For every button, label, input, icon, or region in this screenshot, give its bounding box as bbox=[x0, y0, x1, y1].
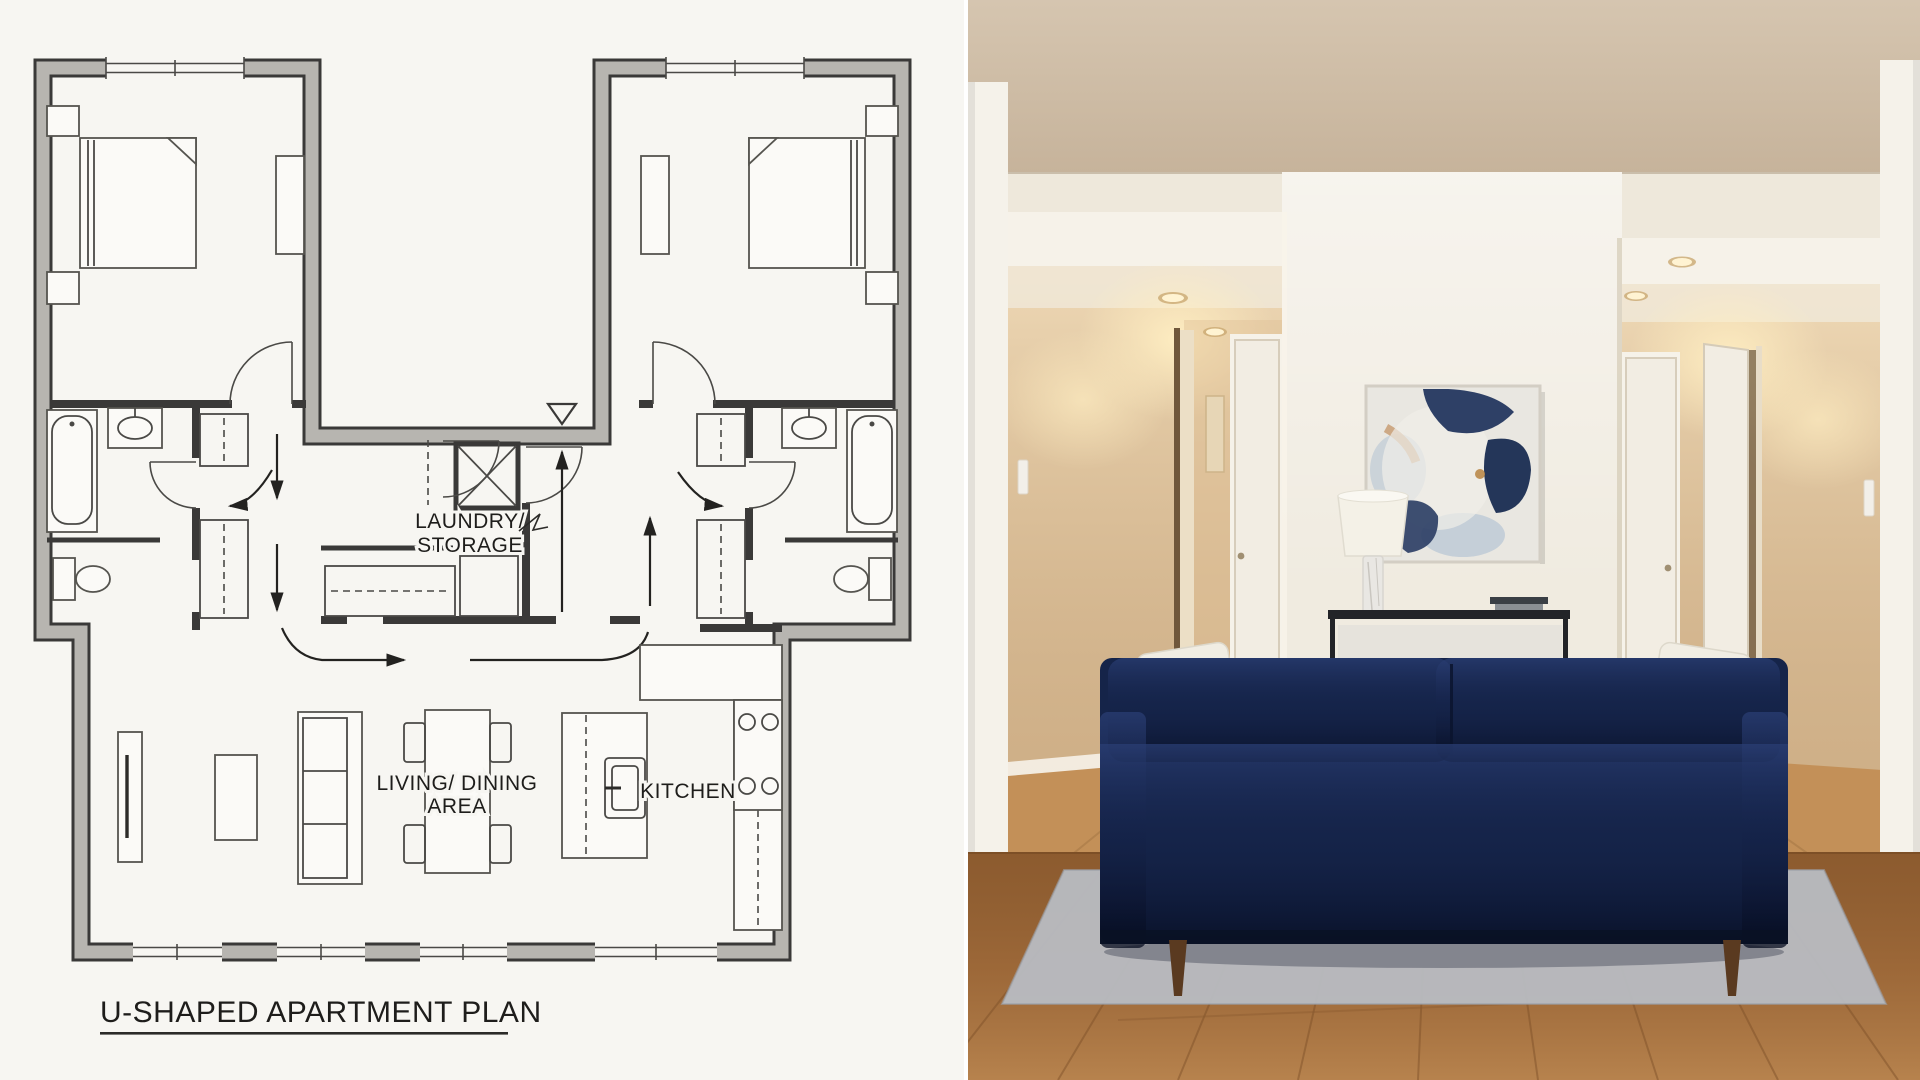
door-knob bbox=[1238, 553, 1245, 560]
lamp-shade bbox=[1338, 496, 1408, 556]
bed-left bbox=[80, 138, 196, 268]
windows-living-room bbox=[133, 941, 717, 963]
title-underline bbox=[100, 1032, 508, 1035]
laundry-storage-label: STORAGE bbox=[417, 534, 523, 557]
nightstand bbox=[866, 106, 898, 136]
living-dining-label: LIVING/ DINING bbox=[376, 772, 537, 795]
apartment-photo-panel bbox=[968, 0, 1920, 1080]
kitchen-island bbox=[562, 713, 647, 858]
bathtub-right bbox=[847, 410, 897, 532]
coffee-table bbox=[215, 755, 257, 840]
light-switch bbox=[1864, 480, 1874, 516]
navy-sofa bbox=[1100, 641, 1788, 996]
hallway-soffit bbox=[1620, 238, 1882, 284]
dresser-left bbox=[276, 156, 304, 254]
door-knob bbox=[1665, 565, 1672, 572]
sofa-plan bbox=[298, 712, 362, 884]
nightstand bbox=[866, 272, 898, 304]
window-bedroom-right bbox=[666, 57, 804, 79]
bathtub-left bbox=[47, 410, 97, 532]
tv-console bbox=[118, 732, 142, 862]
dresser-right bbox=[641, 156, 669, 254]
left-pillar bbox=[968, 82, 1008, 872]
plan-title: U-SHAPED APARTMENT PLAN bbox=[100, 996, 542, 1029]
hallway-soffit bbox=[1008, 212, 1282, 266]
kitchen-label: KITCHEN bbox=[640, 780, 736, 803]
stove bbox=[734, 700, 782, 810]
right-pillar bbox=[1880, 60, 1920, 872]
light-switch bbox=[1018, 460, 1028, 494]
apartment-photo bbox=[968, 0, 1920, 1080]
electrical-panel bbox=[1206, 396, 1224, 472]
floor-plan-drawing: LAUNDRY/ STORAGE bbox=[0, 0, 964, 1080]
sink-right bbox=[782, 408, 836, 448]
nightstand bbox=[47, 272, 79, 304]
living-dining-label: AREA bbox=[427, 795, 486, 818]
bed-right bbox=[749, 138, 865, 268]
nightstand bbox=[47, 106, 79, 136]
lamp-base bbox=[1363, 556, 1383, 614]
books bbox=[1490, 597, 1548, 610]
laundry-storage-label: LAUNDRY/ bbox=[415, 510, 525, 533]
floor-plan-panel: LAUNDRY/ STORAGE bbox=[0, 0, 964, 1080]
sink-left bbox=[108, 408, 162, 448]
composite-image: LAUNDRY/ STORAGE bbox=[0, 0, 1920, 1080]
sofa-body bbox=[1100, 744, 1788, 944]
window-bedroom-left bbox=[106, 57, 244, 79]
ceiling-shading bbox=[968, 0, 1920, 192]
